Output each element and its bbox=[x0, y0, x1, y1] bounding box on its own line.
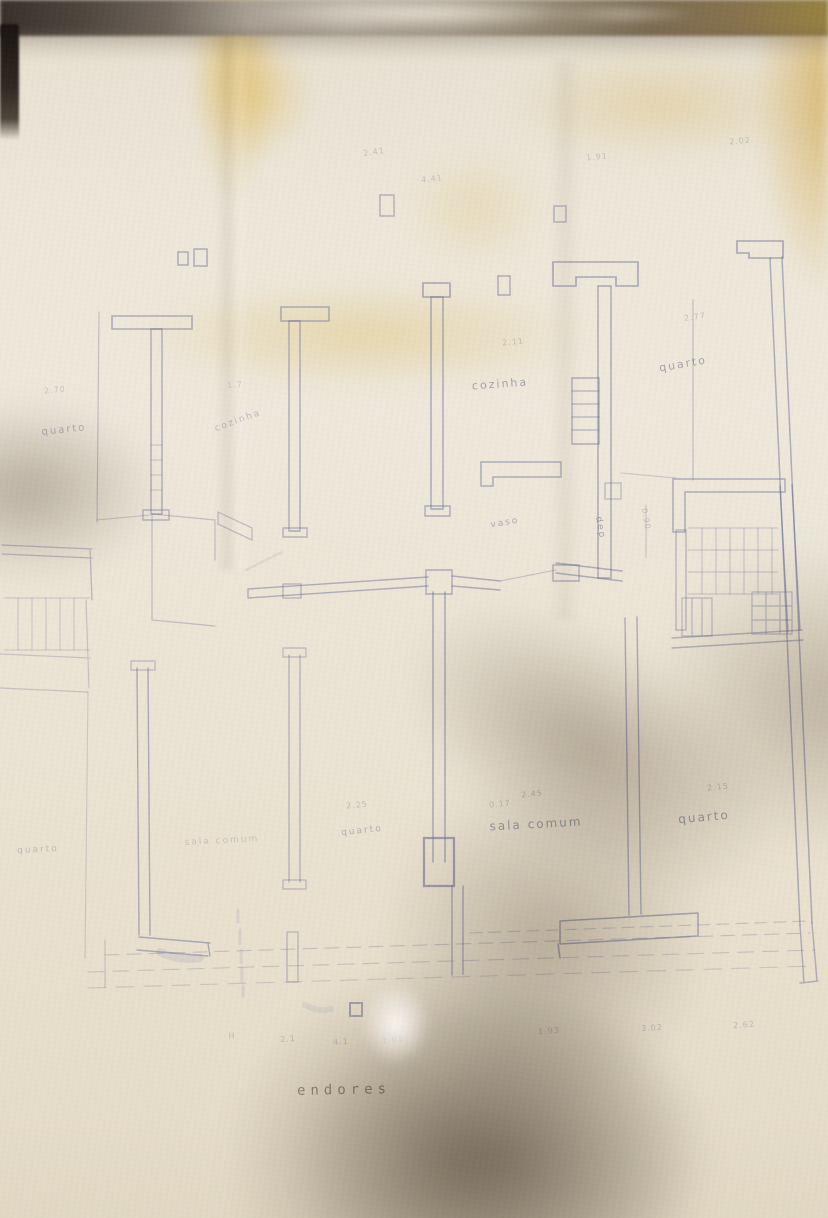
floor-plan-photo: cozinhaquartocozinhaquartovasodepsala co… bbox=[0, 0, 828, 1218]
stamp-smudge bbox=[305, 1005, 331, 1010]
ink-mark bbox=[350, 1003, 362, 1016]
door-symbol bbox=[194, 249, 207, 266]
wall-cap bbox=[423, 283, 450, 297]
room-wall bbox=[289, 655, 300, 882]
exterior-wall-left bbox=[97, 312, 99, 522]
door-leaf bbox=[218, 512, 252, 540]
wall-line bbox=[621, 473, 676, 478]
wall-foot bbox=[425, 506, 450, 516]
door-symbol bbox=[178, 252, 188, 265]
wall-cap bbox=[281, 307, 329, 321]
plan-caption: endores bbox=[297, 1081, 391, 1099]
room-wall bbox=[625, 617, 641, 915]
wall-foot bbox=[131, 661, 155, 670]
wall-foot bbox=[283, 648, 306, 889]
stair-left-top bbox=[2, 545, 92, 600]
wall-cap bbox=[112, 316, 192, 329]
exterior-wall-right bbox=[770, 257, 812, 925]
wall-foot bbox=[283, 528, 307, 537]
closet-wall bbox=[152, 514, 215, 626]
wall-node bbox=[426, 570, 452, 594]
stair-left-bottom bbox=[0, 600, 90, 692]
wall-line bbox=[500, 570, 556, 581]
terrace-line bbox=[105, 933, 810, 955]
door-symbol bbox=[554, 206, 566, 222]
mid-wall bbox=[248, 577, 428, 598]
terrace-line bbox=[470, 921, 810, 933]
wall-stem bbox=[598, 286, 611, 578]
exterior-wall-right-foot bbox=[800, 923, 818, 983]
floor-plan-drawing bbox=[0, 0, 828, 1218]
shelf-hatch bbox=[572, 378, 599, 444]
exterior-wall-left bbox=[85, 692, 88, 958]
bath-wall bbox=[605, 483, 621, 499]
wall-cap bbox=[553, 262, 638, 286]
bath-wall bbox=[481, 462, 561, 486]
door-symbol bbox=[498, 276, 510, 295]
wall-stem bbox=[151, 329, 162, 514]
bottom-t-wall bbox=[558, 913, 698, 958]
mid-wall bbox=[452, 576, 500, 590]
wall-bar bbox=[287, 932, 298, 982]
wall-line bbox=[97, 515, 150, 520]
stair-right-wall bbox=[676, 530, 686, 630]
stair-right-steps bbox=[702, 528, 772, 594]
wall-cap bbox=[737, 241, 783, 258]
wall-hatch bbox=[151, 445, 162, 490]
door-symbol bbox=[380, 195, 394, 216]
center-wall bbox=[433, 592, 445, 862]
stair-right-cap bbox=[673, 479, 785, 532]
wall-stem bbox=[289, 321, 300, 531]
stair-left-steps bbox=[18, 598, 74, 650]
room-wall bbox=[137, 668, 150, 935]
center-wall bbox=[452, 886, 463, 975]
wall-stem bbox=[431, 297, 443, 509]
pencil-smudge bbox=[246, 552, 282, 570]
stair-left-steps bbox=[4, 598, 90, 650]
shelf-hatch bbox=[572, 391, 599, 430]
door-jamb bbox=[424, 838, 454, 886]
